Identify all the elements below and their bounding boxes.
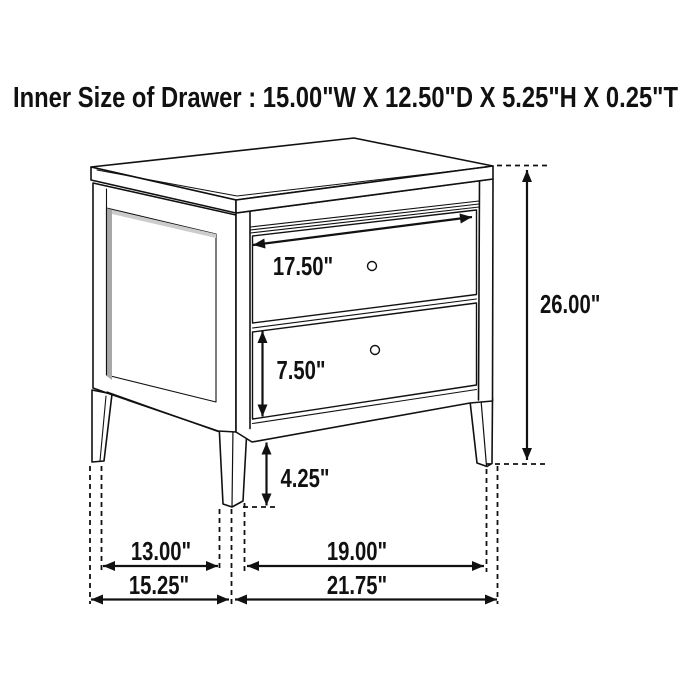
overall-height-label: 26.00" <box>540 290 600 319</box>
drawer-width-label: 17.50" <box>273 252 333 281</box>
leg-span-depth-label: 13.00" <box>131 537 191 566</box>
side-recessed-panel <box>107 208 217 402</box>
panel-shadow-left <box>107 208 113 380</box>
overall-depth-label: 15.25" <box>129 571 189 600</box>
dimension-diagram-page: Inner Size of Drawer : 15.00"W X 12.50"D… <box>0 0 700 700</box>
drawer-2-knob <box>371 346 380 355</box>
drawer2-height-label: 7.50" <box>276 356 325 385</box>
clearance-label: 4.25" <box>280 464 329 493</box>
overall-width-label: 21.75" <box>327 571 387 600</box>
front-right-leg <box>470 398 493 467</box>
leg-span-width-label: 19.00" <box>327 537 387 566</box>
drawer-1-knob <box>368 262 377 271</box>
side-panel <box>93 183 236 432</box>
nightstand-diagram: 17.50" 26.00" 7.50" 4.25" 13.00" 19.00" … <box>0 0 700 700</box>
back-left-leg <box>92 390 112 462</box>
nightstand-drawing <box>91 138 493 507</box>
